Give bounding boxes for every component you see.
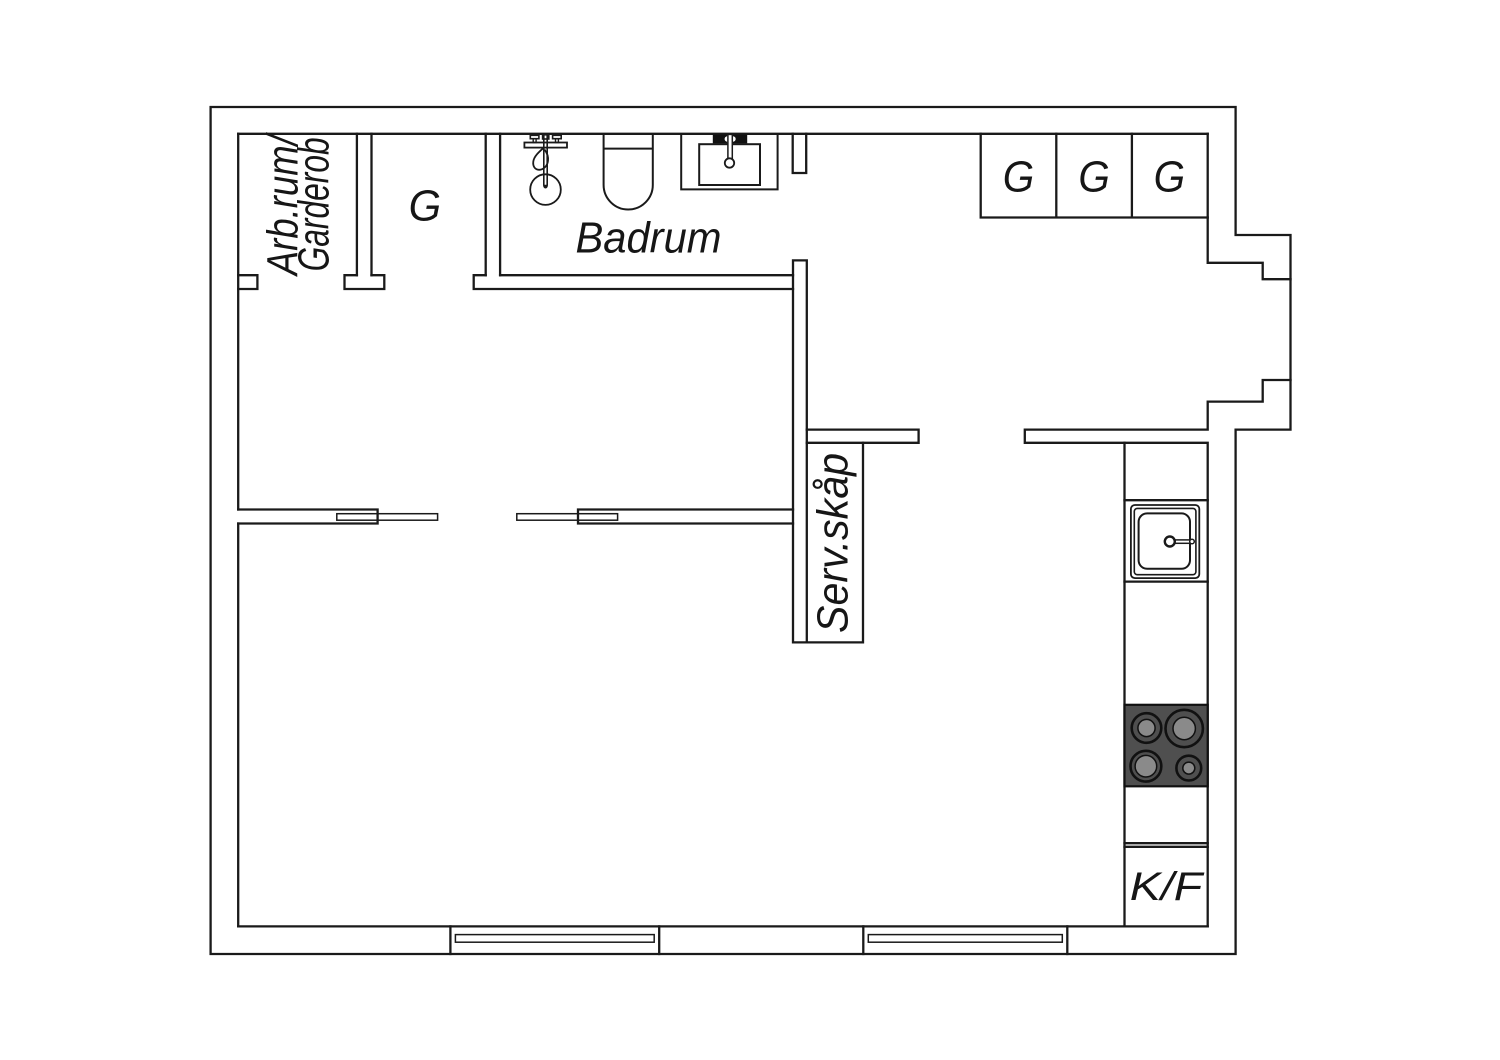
svg-text:G: G bbox=[409, 182, 442, 230]
svg-text:Garderob: Garderob bbox=[290, 137, 338, 271]
svg-text:K/F: K/F bbox=[1130, 865, 1205, 909]
svg-text:Serv.skåp: Serv.skåp bbox=[810, 453, 858, 633]
svg-text:Badrum: Badrum bbox=[576, 215, 722, 263]
svg-text:G: G bbox=[1003, 153, 1035, 201]
svg-text:G: G bbox=[1154, 153, 1186, 201]
svg-text:G: G bbox=[1078, 153, 1110, 201]
